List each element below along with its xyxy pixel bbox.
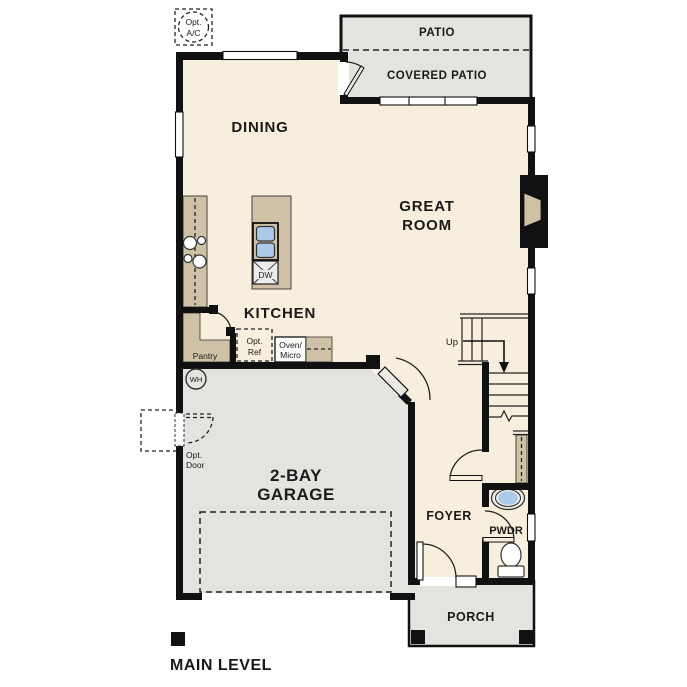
great-room-slider-window [380, 97, 477, 105]
stair-window [528, 268, 536, 294]
garage-label-2: GARAGE [257, 485, 335, 504]
dishwasher-icon: DW [253, 261, 278, 284]
closet-door-leaf [450, 476, 482, 481]
plan-title-block: MAIN LEVEL [170, 632, 272, 674]
water-heater-icon: WH [186, 369, 206, 389]
fireplace [520, 175, 548, 248]
porch-area: PORCH [409, 581, 534, 646]
title-square [171, 632, 185, 646]
dining-label: DINING [231, 119, 288, 136]
opt-ac-label-2: A/C [186, 28, 200, 38]
opt-door-label-1: Opt. [186, 450, 202, 460]
porch-post-right [519, 630, 533, 644]
front-door-leaf [417, 542, 423, 580]
porch-label: PORCH [447, 610, 495, 624]
pantry-wall [180, 307, 213, 313]
porch-post-left [411, 630, 425, 644]
up-label: Up [446, 337, 458, 348]
left-wall-window [176, 112, 184, 157]
opt-ac-unit: Opt. A/C [175, 9, 212, 45]
garage-label-1: 2-BAY [270, 466, 322, 485]
oven-micro-label-2: Micro [280, 350, 301, 360]
foyer-label: FOYER [426, 509, 472, 523]
great-room-label-2: ROOM [402, 217, 452, 234]
kitchen-label: KITCHEN [244, 305, 316, 322]
powder-window [528, 514, 536, 541]
great-room-window [528, 126, 536, 152]
opt-ac-label-1: Opt. [185, 17, 201, 27]
opt-door-label-2: Door [186, 460, 205, 470]
pwdr-label: PWDR [489, 525, 523, 537]
front-door-opening [420, 577, 456, 586]
opt-door-stoop [141, 410, 177, 451]
patio-label: PATIO [419, 27, 455, 39]
oven-micro-label-1: Oven/ [279, 340, 302, 350]
patio-area: PATIO COVERED PATIO [341, 16, 531, 102]
opt-door-opening [175, 413, 184, 446]
opt-ref-label-1: Opt. [246, 336, 262, 346]
covered-patio-label: COVERED PATIO [387, 70, 487, 82]
dw-label: DW [258, 270, 272, 280]
floor-plan-drawing: PATIO COVERED PATIO PORCH [0, 0, 687, 687]
opt-ref-label-2: Ref [248, 347, 262, 357]
pantry-label: Pantry [193, 351, 218, 361]
wh-label: WH [190, 375, 203, 384]
plan-title: MAIN LEVEL [170, 657, 272, 674]
dining-window [223, 52, 297, 60]
floor-plan: PATIO COVERED PATIO PORCH [0, 0, 687, 687]
front-door-threshold [456, 576, 476, 587]
oven-micro-box: Oven/ Micro [275, 337, 306, 362]
stair-wall [482, 362, 489, 452]
powder-door-leaf [483, 538, 514, 543]
opt-ac-pad [175, 9, 212, 45]
great-room-label-1: GREAT [399, 198, 454, 215]
